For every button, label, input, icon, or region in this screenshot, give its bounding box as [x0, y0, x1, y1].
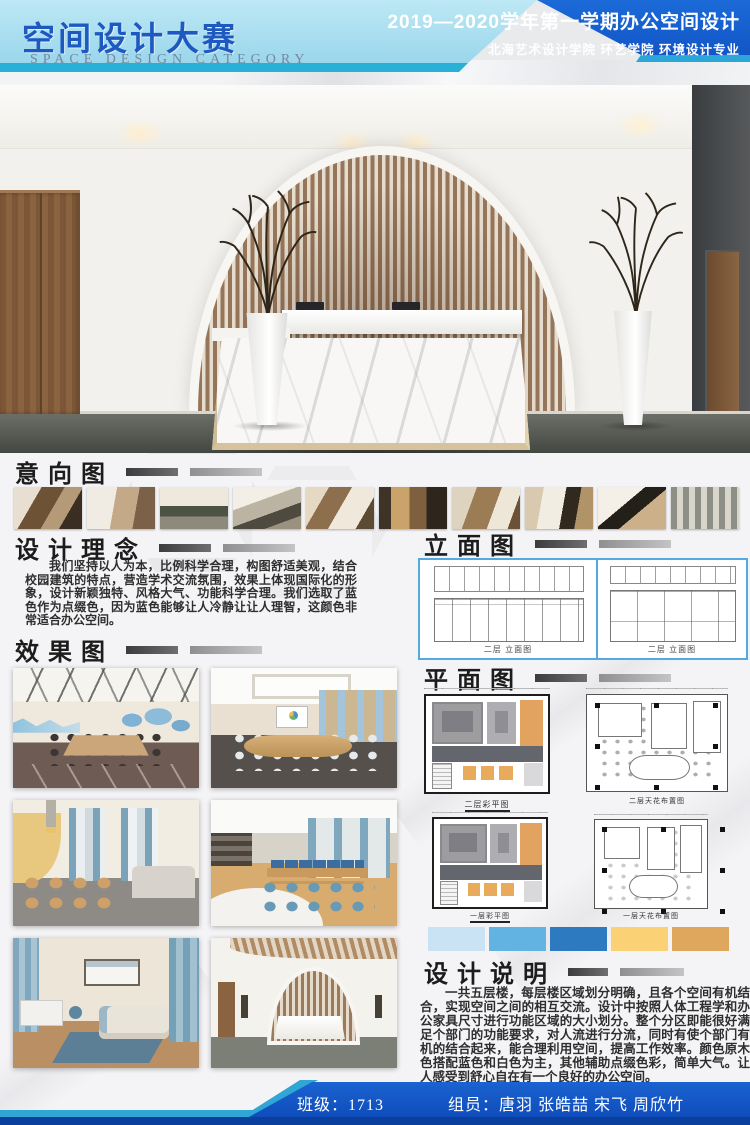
floor-plan-color-2f — [424, 694, 550, 794]
dry-branches — [586, 191, 686, 315]
effect-render-grid — [13, 668, 397, 1068]
header-right-block: 2019—2020学年第一学期办公空间设计 北海艺术设计学院 环艺学院 环境设计… — [387, 7, 740, 58]
hero-right-door — [705, 250, 741, 417]
palette-swatch-1 — [428, 927, 485, 951]
term-title: 2019—2020学年第一学期办公空间设计 — [387, 7, 740, 34]
header-banner: 空间设计大赛 SPACE DESIGN CATEGORY 2019—2020学年… — [0, 0, 750, 85]
hero-render-reception — [0, 85, 750, 453]
heading-dash-dark — [568, 968, 608, 976]
heading-dash-light — [223, 544, 295, 552]
render-open-office — [211, 800, 397, 926]
elevation-title: 立面图 — [424, 526, 523, 561]
concept-paragraph: 我们坚持以人为本，比例科学合理，构图舒适美观，结合校园建筑的特点，营造学术交流氛… — [25, 560, 357, 628]
white-planter — [608, 311, 658, 425]
render-large-conference-room — [211, 668, 397, 788]
dimension-line — [424, 688, 550, 689]
floor-plan-line-1f — [594, 819, 708, 909]
intent-photo-8 — [525, 487, 593, 529]
hero-ceiling — [0, 85, 750, 149]
elevation-caption-right: 二层 立面图 — [598, 644, 746, 655]
intent-photo-1 — [14, 487, 82, 529]
dimension-line — [586, 688, 728, 689]
palette-swatch-4 — [611, 927, 668, 951]
intent-photo-2 — [87, 487, 155, 529]
floor-plan-color-1f — [432, 817, 548, 909]
description-title: 设计说明 — [424, 954, 556, 989]
dimension-line — [432, 812, 548, 813]
palette-swatch-3 — [550, 927, 607, 951]
intent-photo-5 — [306, 487, 374, 529]
plan-title: 平面图 — [424, 660, 523, 695]
heading-dash-dark — [159, 544, 211, 552]
heading-dash-dark — [535, 540, 587, 548]
color-palette-strip — [428, 927, 729, 951]
heading-dash-light — [599, 674, 671, 682]
heading-dash-light — [190, 646, 262, 654]
cad-elevation-lines — [434, 598, 584, 642]
hero-dark-wall — [692, 85, 750, 415]
section-heading-elevation: 立面图 — [424, 526, 671, 561]
school-line: 北海艺术设计学院 环艺学院 环境设计专业 — [387, 39, 740, 58]
elevation-caption-left: 二层 立面图 — [420, 644, 596, 655]
section-heading-effect: 效果图 — [15, 632, 262, 667]
effect-title: 效果图 — [15, 632, 114, 667]
dimension-line — [594, 814, 708, 815]
intent-photo-7 — [452, 487, 520, 529]
render-reception-area — [211, 938, 397, 1068]
heading-dash-dark — [126, 468, 178, 476]
render-leisure-lounge — [13, 800, 199, 926]
plan-caption-2: 二层天花布置图 — [586, 796, 728, 806]
footer-members-label: 组员：唐羽 张皓喆 宋飞 周欣竹 — [448, 1091, 684, 1115]
plan-caption-3: 一层彩平图 — [432, 911, 548, 921]
intent-photo-4 — [233, 487, 301, 529]
intent-photo-6 — [379, 487, 447, 529]
palette-swatch-2 — [489, 927, 546, 951]
dry-branches — [216, 189, 320, 317]
plan-caption-4: 一层天花布置图 — [594, 911, 708, 921]
cad-plan-strip — [434, 566, 584, 592]
counter-tablet — [392, 302, 420, 310]
cad-elevation-lines — [610, 590, 736, 642]
description-paragraph: 一共五层楼，每层楼区域划分明确，且各个空间有机结合，实现空间之间的相互交流。设计… — [420, 986, 750, 1084]
heading-dash-light — [599, 540, 671, 548]
intent-photo-10 — [671, 487, 739, 529]
heading-dash-dark — [126, 646, 178, 654]
render-meeting-room-world-map — [13, 668, 199, 788]
footer-bottom-strip — [0, 1117, 750, 1125]
hero-left-door — [0, 190, 80, 414]
elevation-drawings-box: 二层 立面图 二层 立面图 — [418, 558, 748, 660]
floor-plan-line-2f — [586, 694, 728, 792]
section-heading-plan: 平面图 — [424, 660, 671, 695]
elevation-drawing-right: 二层 立面图 — [598, 560, 746, 658]
elevation-drawing-left: 二层 立面图 — [420, 560, 598, 658]
heading-dash-light — [190, 468, 262, 476]
cad-plan-strip — [610, 566, 736, 584]
heading-dash-dark — [535, 674, 587, 682]
intent-photo-9 — [598, 487, 666, 529]
design-poster: 空间设计大赛 SPACE DESIGN CATEGORY 2019—2020学年… — [0, 0, 750, 1125]
intent-title: 意向图 — [15, 454, 114, 489]
poster-subtitle: SPACE DESIGN CATEGORY — [30, 52, 310, 68]
palette-swatch-5 — [672, 927, 729, 951]
section-heading-intent: 意向图 — [15, 454, 262, 489]
footer-class-label: 班级：1713 — [297, 1091, 384, 1115]
heading-dash-light — [620, 968, 684, 976]
section-heading-description: 设计说明 — [424, 954, 684, 989]
intent-thumbnails — [14, 487, 739, 529]
intent-photo-3 — [160, 487, 228, 529]
plan-caption-1: 二层彩平图 — [424, 799, 550, 810]
render-manager-office — [13, 938, 199, 1068]
